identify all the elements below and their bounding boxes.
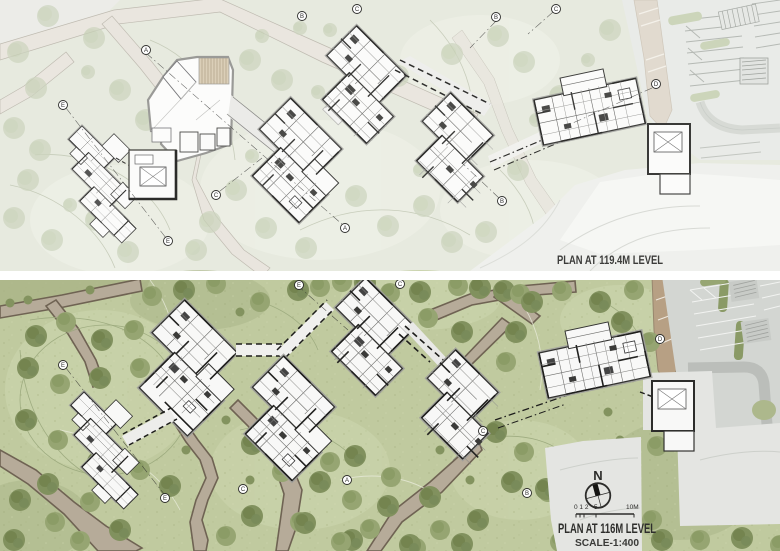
- svg-text:C: C: [241, 487, 246, 493]
- svg-text:SCALE-1:400: SCALE-1:400: [575, 537, 639, 549]
- svg-text:5: 5: [594, 504, 598, 511]
- svg-text:N: N: [593, 468, 602, 483]
- svg-text:C: C: [398, 282, 403, 288]
- svg-text:B: B: [500, 199, 504, 205]
- svg-text:C: C: [554, 7, 559, 13]
- svg-text:E: E: [166, 239, 170, 245]
- svg-text:B: B: [300, 14, 304, 20]
- svg-text:C: C: [355, 7, 360, 13]
- svg-text:A: A: [343, 226, 347, 232]
- svg-text:B: B: [494, 15, 498, 21]
- svg-text:E: E: [61, 363, 65, 369]
- svg-text:D: D: [658, 337, 663, 343]
- svg-text:PLAN AT 116M LEVEL: PLAN AT 116M LEVEL: [558, 520, 656, 536]
- svg-text:E: E: [61, 103, 65, 109]
- svg-text:E: E: [163, 496, 167, 502]
- svg-text:PLAN AT 119.4M LEVEL: PLAN AT 119.4M LEVEL: [557, 253, 663, 267]
- svg-text:C: C: [214, 193, 219, 199]
- svg-text:D: D: [654, 82, 659, 88]
- svg-text:B: B: [525, 491, 529, 497]
- svg-text:E: E: [297, 283, 301, 289]
- svg-text:C: C: [481, 429, 486, 435]
- svg-text:A: A: [345, 478, 349, 484]
- svg-text:A: A: [144, 48, 148, 54]
- svg-text:10M: 10M: [626, 504, 639, 511]
- svg-text:0 1 2: 0 1 2: [574, 504, 589, 511]
